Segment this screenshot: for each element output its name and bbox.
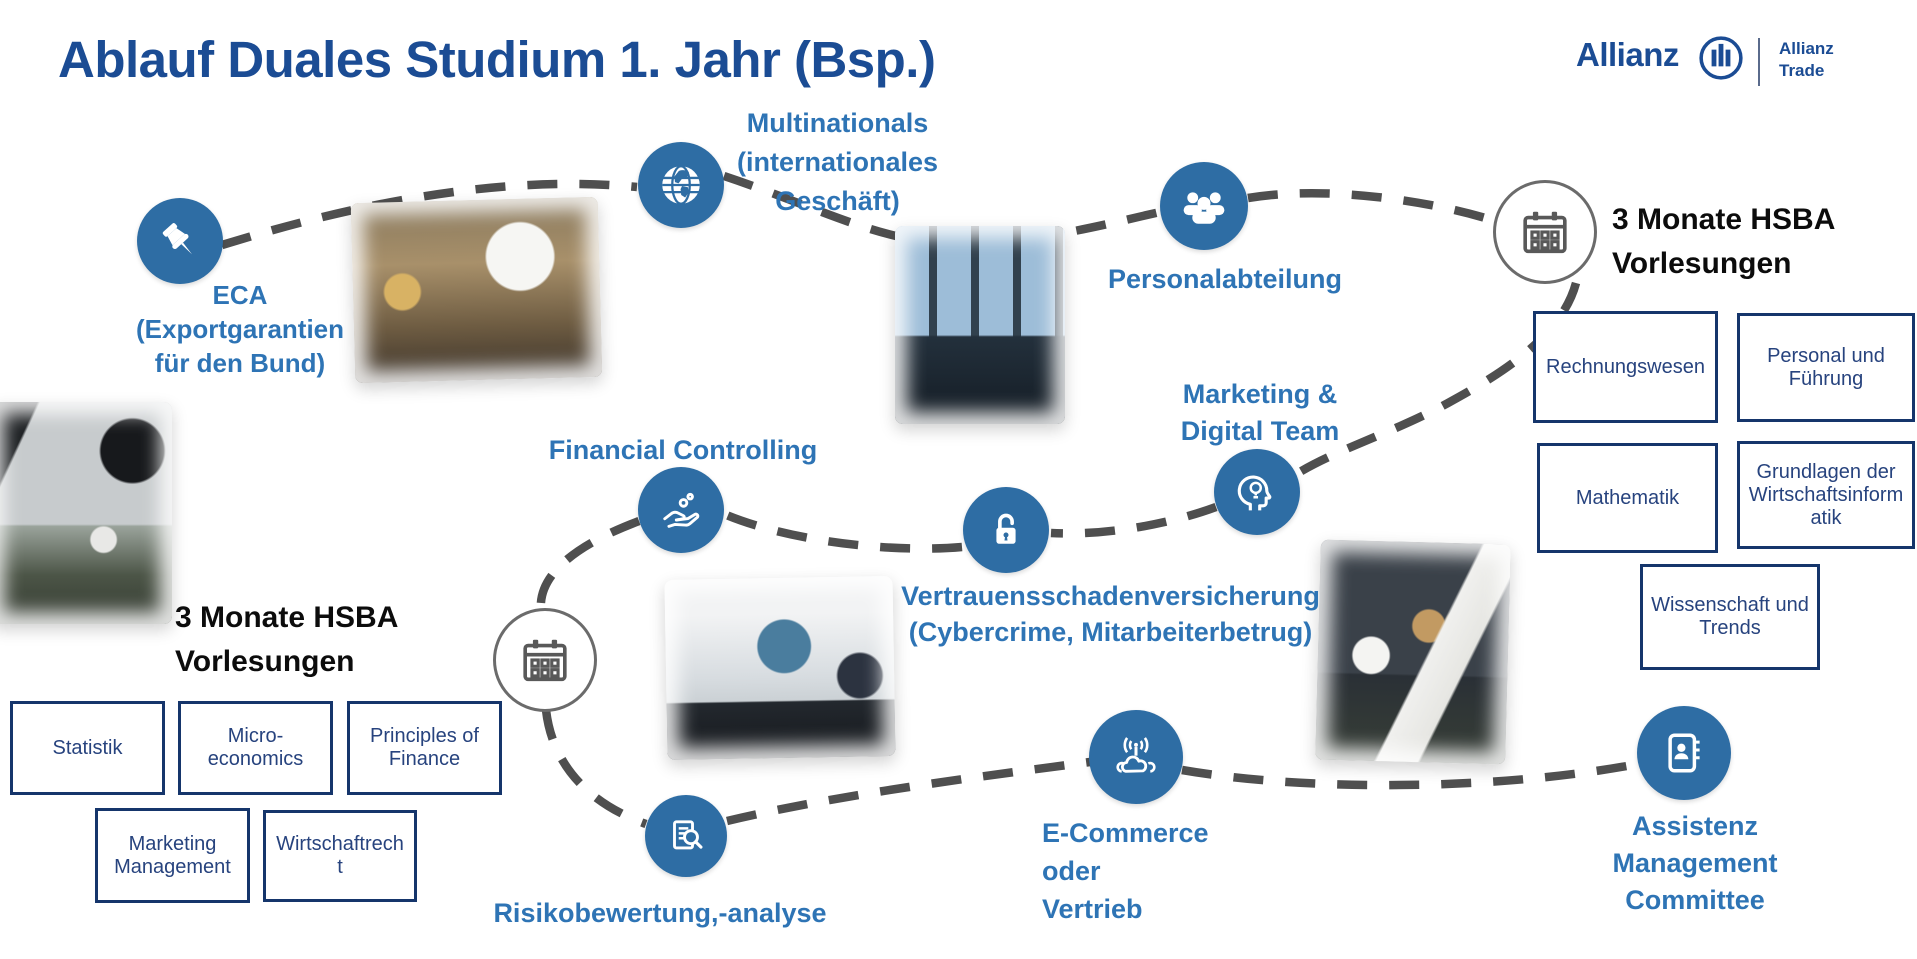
multinationals-station-circle (638, 142, 724, 228)
slide-canvas: Ablauf Duales Studium 1. Jahr (Bsp.) All… (0, 0, 1917, 959)
cloud-network-icon (1110, 731, 1162, 783)
financial-controlling-station-circle (638, 467, 724, 553)
globe-icon (656, 160, 706, 210)
hsba-left-calendar-circle (493, 608, 597, 712)
course-box-wirtschaftsinformatik: Grundlagen der Wirtschaftsinformatik (1737, 441, 1915, 549)
risikobewertung-station-circle (645, 795, 727, 877)
hsba-right-calendar-circle (1493, 180, 1597, 284)
course-box-statistik: Statistik (10, 701, 165, 795)
assistenz-station-circle (1637, 706, 1731, 800)
personalabteilung-label: Personalabteilung (1095, 262, 1355, 298)
eca-station-circle (137, 198, 223, 284)
photo-presentation-screen (664, 576, 895, 760)
vertrauensschaden-label: Vertrauensschadenversicherung (Cybercrim… (878, 578, 1343, 650)
course-box-personal-fuehrung: Personal und Führung (1737, 313, 1915, 422)
page-title: Ablauf Duales Studium 1. Jahr (Bsp.) (58, 30, 1178, 89)
open-padlock-icon (983, 507, 1029, 553)
course-box-principles-finance: Principles of Finance (347, 701, 502, 795)
ecommerce-station-circle (1089, 710, 1183, 804)
risikobewertung-label: Risikobewertung,-analyse (490, 896, 830, 932)
course-box-wissenschaft-trends: Wissenschaft und Trends (1640, 564, 1820, 670)
marketing-digital-station-circle (1214, 449, 1300, 535)
calendar-icon (1516, 203, 1574, 261)
eca-label: ECA (Exportgarantien für den Bund) (120, 278, 360, 380)
allianz-trade-label: Allianz Trade (1779, 38, 1834, 82)
allianz-logo-icon (1698, 35, 1744, 81)
people-group-icon (1178, 180, 1230, 232)
hsba-right-label: 3 Monate HSBA Vorlesungen (1612, 198, 1892, 286)
assistenz-label: Assistenz Management Committee (1585, 808, 1805, 919)
course-box-microeconomics: Micro-economics (178, 701, 333, 795)
photo-desk-monitors (1315, 540, 1511, 765)
photo-window-table-talk (895, 226, 1065, 424)
course-box-mathematik: Mathematik (1537, 443, 1718, 553)
logo-divider (1758, 38, 1760, 86)
hsba-left-label: 3 Monate HSBA Vorlesungen (175, 596, 455, 684)
personalabteilung-station-circle (1160, 162, 1248, 250)
course-box-marketing-management: Marketing Management (95, 808, 250, 903)
hand-coins-icon (656, 485, 706, 535)
calendar-icon (516, 631, 574, 689)
photo-lounge-call (0, 402, 172, 624)
pushpin-icon (156, 217, 204, 265)
vertrauensschaden-station-circle (963, 487, 1049, 573)
photo-meeting-whiteboard (351, 197, 603, 383)
course-box-wirtschaftrecht: Wirtschaftrecht (263, 810, 417, 902)
document-search-icon (663, 813, 709, 859)
ecommerce-label: E-Commerce oder Vertrieb (1042, 814, 1272, 928)
marketing-digital-label: Marketing & Digital Team (1160, 376, 1360, 450)
head-lightbulb-icon (1232, 467, 1282, 517)
allianz-wordmark: Allianz (1576, 36, 1679, 74)
multinationals-label: Multinationals (internationales Geschäft… (715, 104, 960, 221)
course-box-rechnungswesen: Rechnungswesen (1533, 311, 1718, 423)
financial-controlling-label: Financial Controlling (543, 433, 823, 469)
contact-book-icon (1658, 727, 1710, 779)
